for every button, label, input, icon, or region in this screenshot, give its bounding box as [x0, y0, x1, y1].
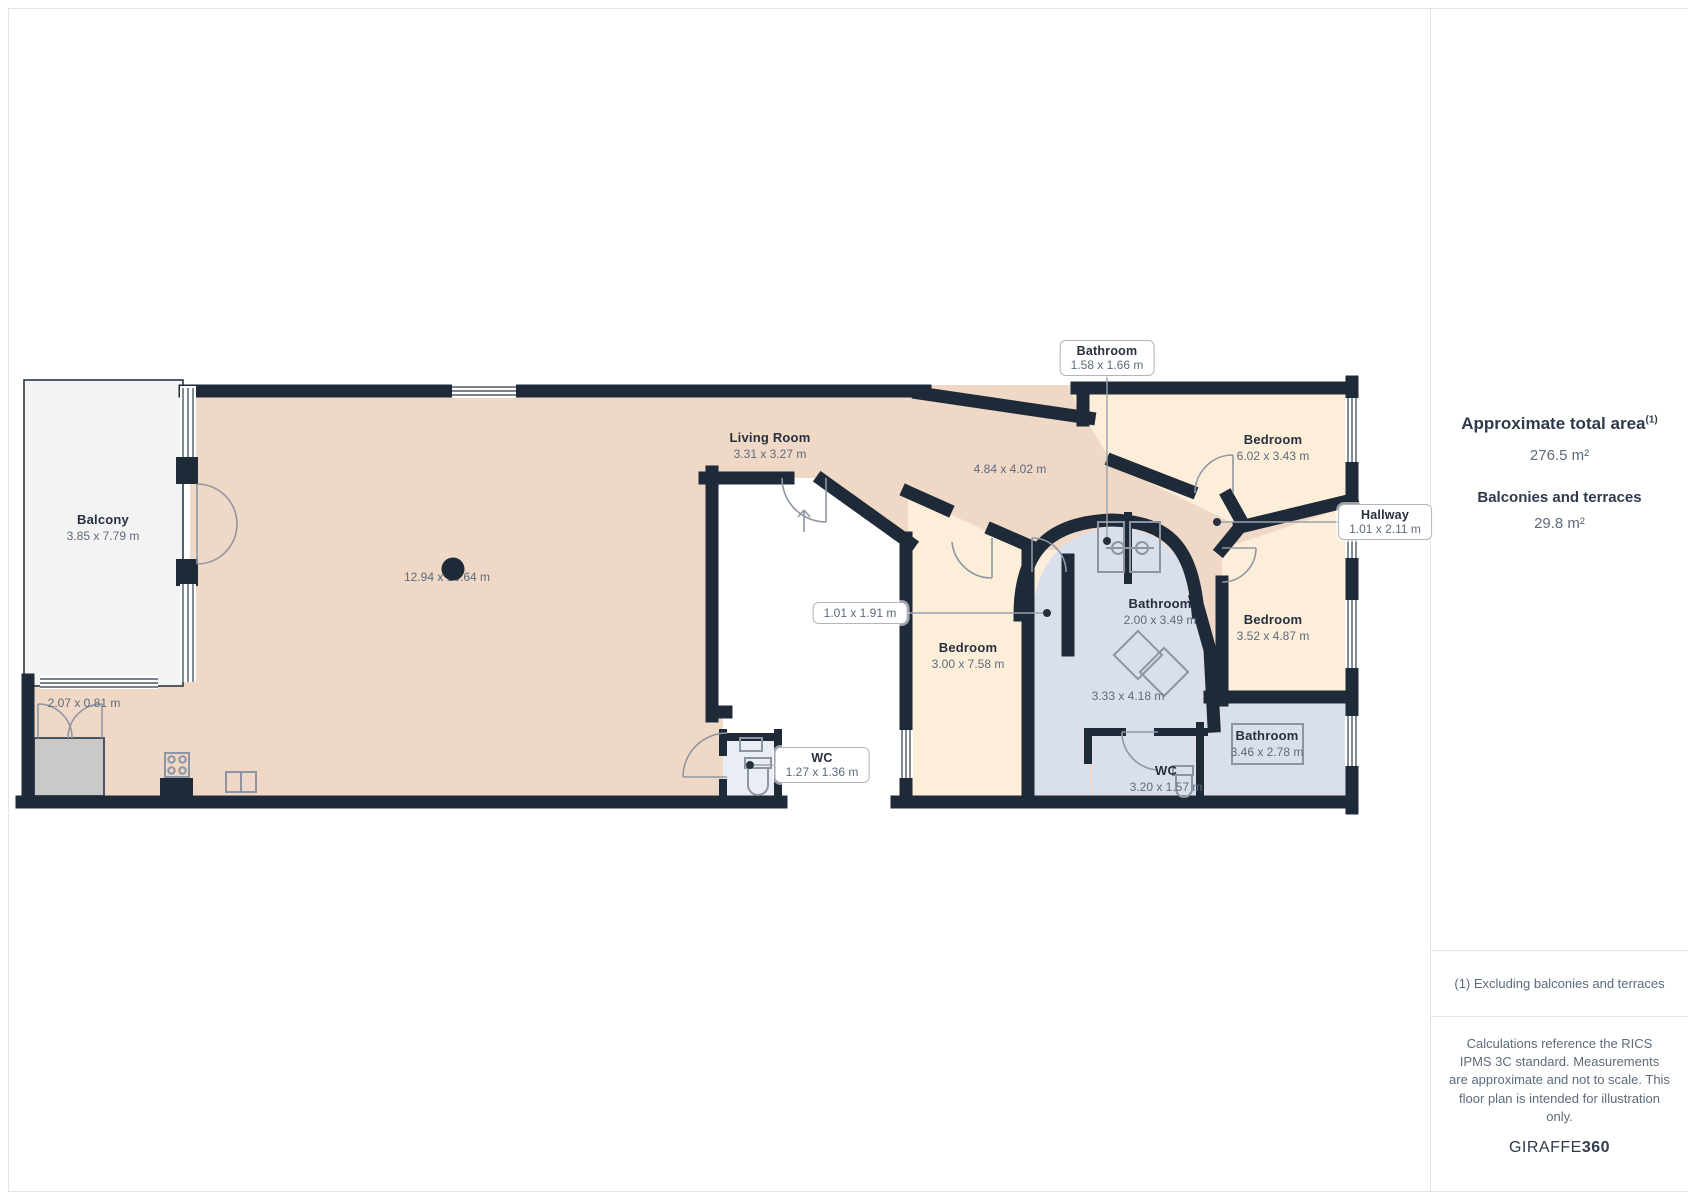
- utility-leg-floor: [1033, 726, 1090, 802]
- bathroom-mid-label: Bathroom 2.00 x 3.49 m: [1124, 596, 1197, 628]
- window-balcony-bottom: [40, 676, 158, 689]
- footnote-text: (1) Excluding balconies and terraces: [1431, 975, 1688, 993]
- bathroom-top-callout: Bathroom 1.58 x 1.66 m: [1060, 340, 1155, 376]
- room-fills: [22, 380, 1352, 805]
- hallway-callout: Hallway 1.01 x 2.11 m: [1338, 504, 1432, 540]
- giraffe360-logo: GIRAFFE360: [1431, 1139, 1688, 1157]
- open-area-dimension-label: 4.84 x 4.02 m: [974, 462, 1047, 478]
- wc-mid-callout: WC 1.27 x 1.36 m: [775, 747, 870, 783]
- bathroom-right-label: Bathroom 3.46 x 2.78 m: [1231, 728, 1304, 760]
- disclaimer-text: Calculations reference the RICS IPMS 3C …: [1449, 1035, 1670, 1126]
- closet-dimension-label: 2.07 x 0.81 m: [48, 696, 121, 712]
- bedroom-top-label: Bedroom 6.02 x 3.43 m: [1237, 432, 1310, 464]
- bedroom-mid-label: Bedroom 3.00 x 7.58 m: [932, 640, 1005, 672]
- window-top-wall: [452, 384, 516, 398]
- total-area-title: Approximate total area(1): [1431, 414, 1688, 434]
- balconies-title: Balconies and terraces: [1431, 489, 1688, 506]
- camera-point: [442, 558, 465, 581]
- sidebar-divider: [1431, 950, 1688, 951]
- niche-callout: 1.01 x 1.91 m: [813, 602, 908, 624]
- wc-right-label: WC 3.20 x 1.57 m: [1130, 763, 1203, 795]
- footnote-marker: (1): [1646, 414, 1658, 425]
- living-room-label: Living Room 3.31 x 3.27 m: [730, 430, 811, 462]
- window-bedroom-mid: [899, 730, 913, 778]
- closet: [34, 738, 104, 796]
- balcony-label: Balcony 3.85 x 7.79 m: [67, 512, 140, 544]
- bedroom-right-label: Bedroom 3.52 x 4.87 m: [1237, 612, 1310, 644]
- balconies-value: 29.8 m²: [1431, 515, 1688, 532]
- sidebar-divider: [1431, 1016, 1688, 1017]
- utility-dimension-label: 3.33 x 4.18 m: [1092, 689, 1165, 705]
- total-area-value: 276.5 m²: [1431, 447, 1688, 464]
- summary-sidebar: Approximate total area(1) 276.5 m² Balco…: [1430, 9, 1688, 1191]
